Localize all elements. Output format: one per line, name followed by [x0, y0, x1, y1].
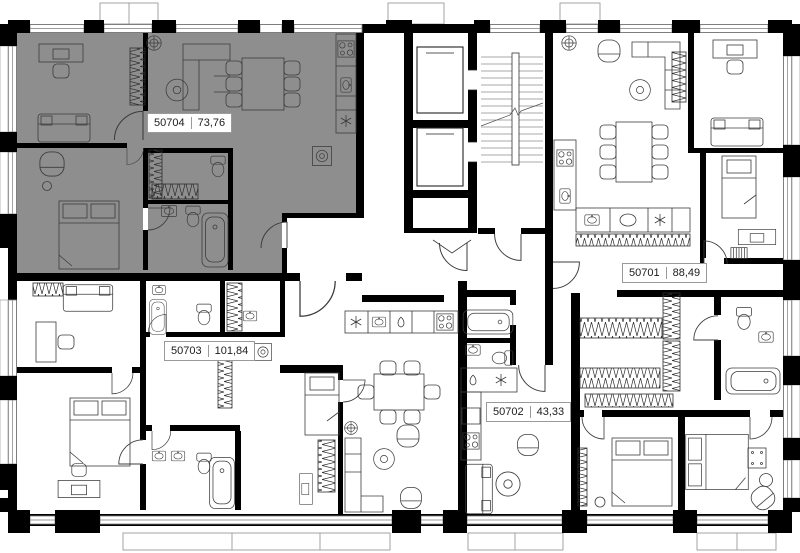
apartment-50701-furniture [554, 36, 780, 394]
unit-label-50704[interactable]: 50704 73,76 [147, 113, 232, 133]
unit-number: 50703 [165, 345, 209, 357]
staircase [481, 53, 543, 165]
floor-plan: 50704 73,76 50701 88,49 50703 101,84 507… [0, 0, 800, 553]
unit-label-50703[interactable]: 50703 101,84 [164, 341, 255, 361]
unit-label-50701[interactable]: 50701 88,49 [622, 263, 707, 283]
unit-label-50702[interactable]: 50702 43,33 [486, 402, 571, 422]
entrance-door-mark [433, 240, 471, 253]
apartment-50703-furniture [36, 285, 458, 512]
unit-number: 50704 [148, 117, 192, 129]
unit-number: 50701 [623, 267, 667, 279]
bedroom-wing-furniture [595, 434, 778, 513]
unit-area: 73,76 [192, 117, 232, 129]
unit-area: 101,84 [209, 345, 255, 357]
unit-area: 43,33 [531, 406, 571, 418]
unit-area: 88,49 [667, 267, 707, 279]
unit-number: 50702 [487, 406, 531, 418]
